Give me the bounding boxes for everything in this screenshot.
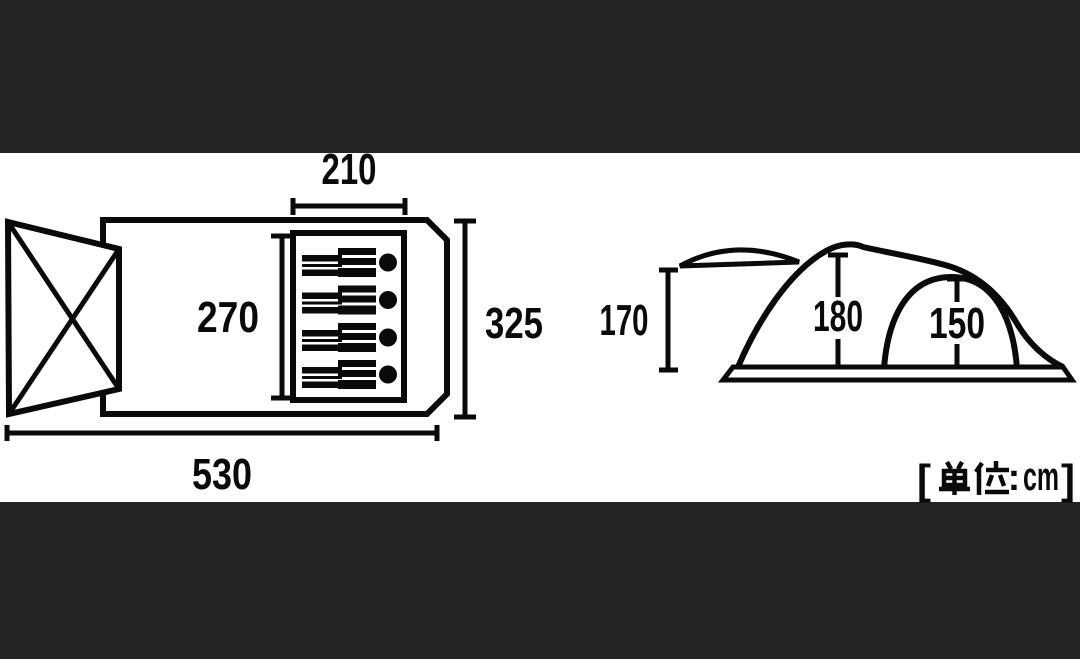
dim-150-label: 150 xyxy=(929,299,985,348)
letterbox-bottom-bar xyxy=(0,502,1080,659)
unit-cm-text: cm xyxy=(1023,455,1059,499)
unit-label: [ 単位 : cm ] xyxy=(917,455,1075,503)
tent-dimension-diagram: 210 270 325 530 170 180 150 [ xyxy=(0,0,1080,659)
unit-open-bracket: [ xyxy=(917,456,931,503)
screenshot-root: 210 270 325 530 170 180 150 [ xyxy=(0,0,1080,659)
ground-line xyxy=(723,367,1072,380)
unit-close-bracket: ] xyxy=(1061,456,1075,503)
dim-210-label: 210 xyxy=(322,145,377,194)
dim-170-label: 170 xyxy=(600,296,649,345)
letterbox-top-bar xyxy=(0,0,1080,153)
dim-180-label: 180 xyxy=(813,292,863,341)
dim-325-label: 325 xyxy=(485,299,543,348)
unit-separator: : xyxy=(1008,457,1021,499)
dim-530-label: 530 xyxy=(192,450,252,499)
dim-270-label: 270 xyxy=(197,293,259,342)
